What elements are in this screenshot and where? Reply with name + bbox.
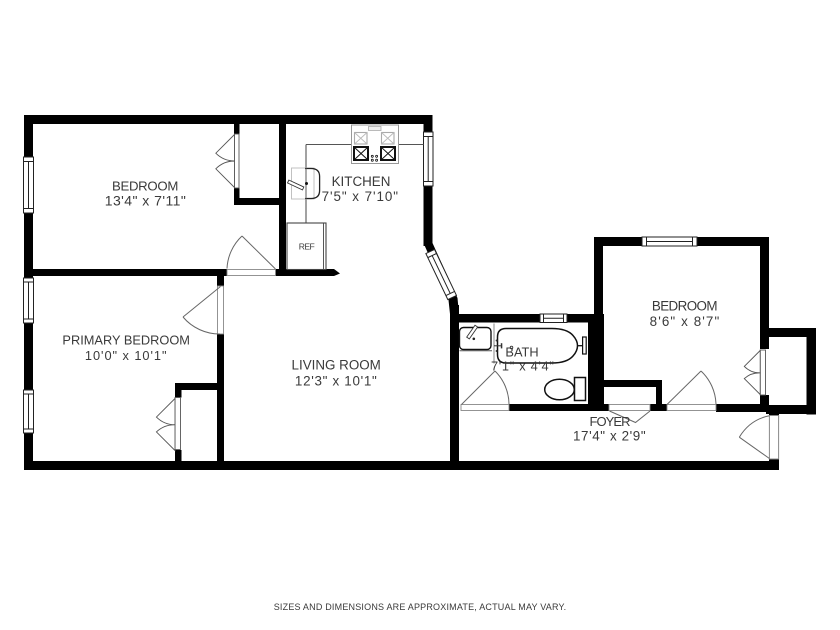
svg-text:PRIMARY BEDROOM: PRIMARY BEDROOM <box>62 332 190 347</box>
svg-text:8'6" x 8'7": 8'6" x 8'7" <box>650 314 721 329</box>
svg-text:REF: REF <box>299 241 315 251</box>
svg-text:13'4" x 7'11": 13'4" x 7'11" <box>105 193 187 209</box>
svg-text:KITCHEN: KITCHEN <box>332 174 391 189</box>
svg-text:7'5" x 7'10": 7'5" x 7'10" <box>322 189 399 204</box>
svg-text:12'3" x 10'1": 12'3" x 10'1" <box>295 373 378 388</box>
svg-text:BEDROOM: BEDROOM <box>112 179 178 194</box>
svg-text:BATH: BATH <box>505 344 538 359</box>
svg-text:10'0" x 10'1": 10'0" x 10'1" <box>85 348 168 363</box>
svg-text:17'4" x 2'9": 17'4" x 2'9" <box>573 429 646 444</box>
svg-text:LIVING ROOM: LIVING ROOM <box>292 358 381 373</box>
svg-text:FOYER: FOYER <box>589 414 630 429</box>
svg-text:7'1" x 4'4": 7'1" x 4'4" <box>491 359 555 374</box>
svg-text:BEDROOM: BEDROOM <box>652 299 717 314</box>
svg-text:SIZES AND DIMENSIONS ARE APPRO: SIZES AND DIMENSIONS ARE APPROXIMATE, AC… <box>274 602 567 612</box>
